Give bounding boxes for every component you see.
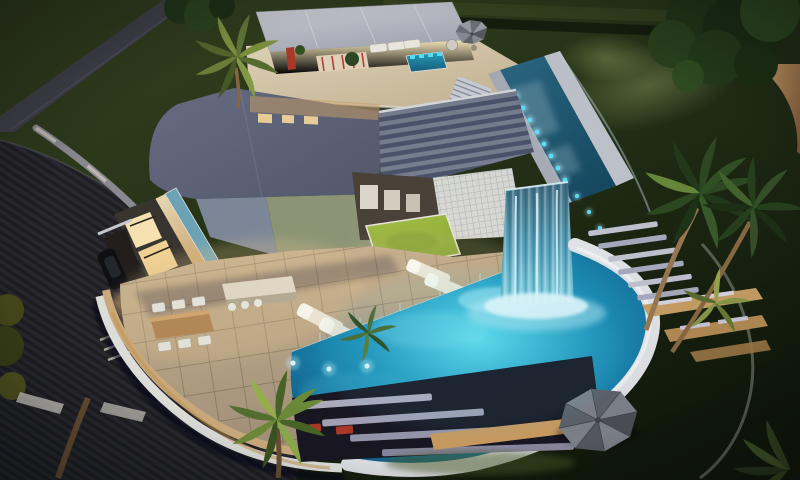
night-vignette: [0, 0, 800, 480]
render-canvas: [0, 0, 800, 480]
villa-aerial-render: [0, 0, 800, 480]
